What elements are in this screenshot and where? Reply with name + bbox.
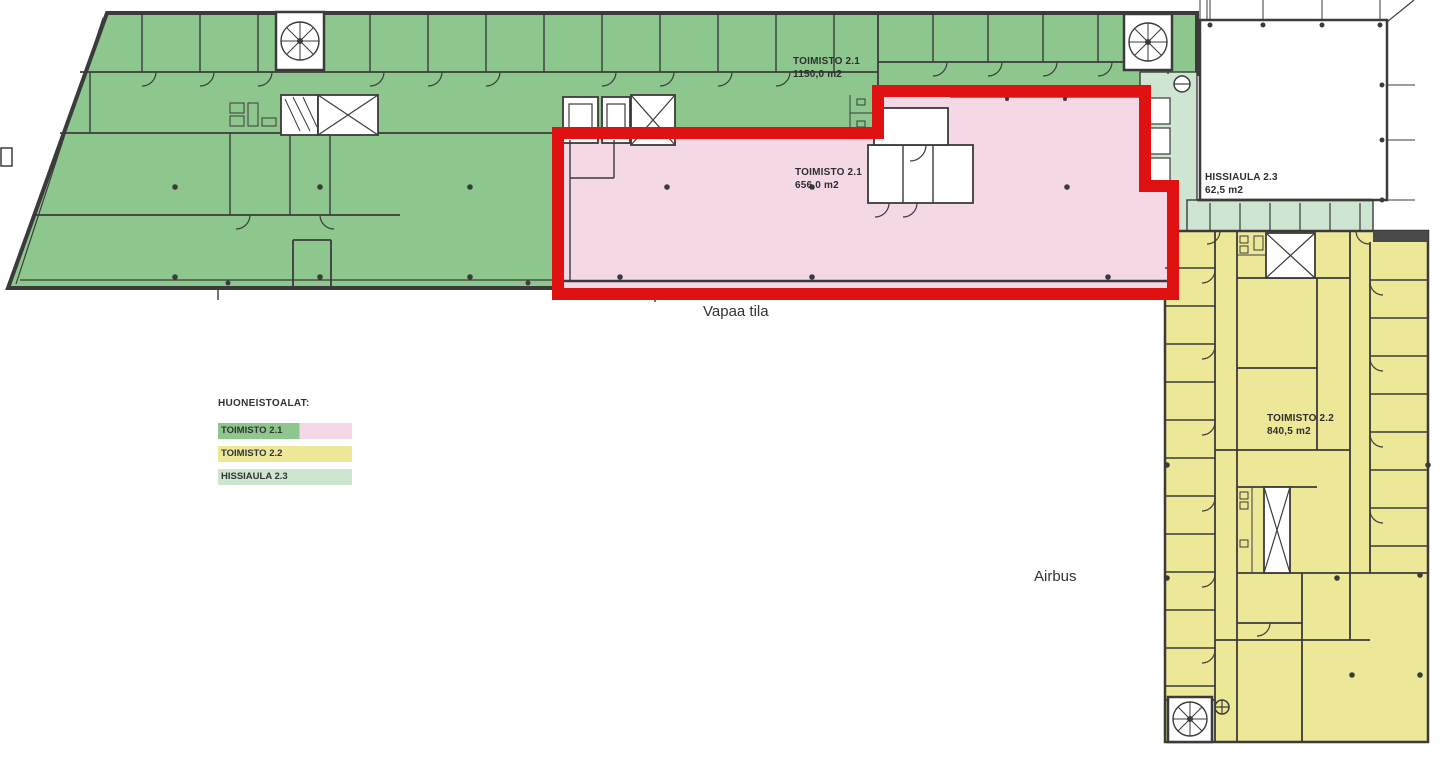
area-size: 62,5 m2	[1205, 185, 1278, 198]
label-hissiaula-23: HISSIAULA 2.3 62,5 m2	[1205, 172, 1278, 197]
label-toimisto-22: TOIMISTO 2.2 840,5 m2	[1267, 413, 1334, 438]
floor-plan-page: TOIMISTO 2.1 1150,0 m2 TOIMISTO 2.1 656,…	[0, 0, 1447, 763]
area-hissiaula-band	[1187, 200, 1373, 231]
floor-plan-canvas	[0, 0, 1447, 763]
area-name: TOIMISTO 2.1	[793, 56, 860, 69]
area-size: 840,5 m2	[1267, 426, 1334, 439]
inner-room	[868, 145, 973, 203]
area-size: 1150,0 m2	[793, 69, 860, 82]
section-mark	[1, 148, 12, 166]
wall-band-dark	[1373, 231, 1428, 242]
area-name: HISSIAULA 2.3	[1205, 172, 1278, 185]
spiral-stair-icon	[276, 12, 324, 70]
inner-room	[874, 108, 948, 145]
legend-item-toimisto-22: TOIMISTO 2.2	[218, 446, 352, 462]
legend: HUONEISTOALAT: TOIMISTO 2.1 TOIMISTO 2.2…	[218, 398, 352, 492]
spiral-stair-icon	[1168, 697, 1212, 742]
legend-title: HUONEISTOALAT:	[218, 398, 352, 409]
annotation-airbus: Airbus	[1034, 568, 1077, 585]
label-toimisto-21-free: TOIMISTO 2.1 656,0 m2	[795, 167, 862, 192]
annotation-vapaa-tila: Vapaa tila	[703, 303, 769, 320]
label-toimisto-21-main: TOIMISTO 2.1 1150,0 m2	[793, 56, 860, 81]
area-name: TOIMISTO 2.1	[795, 167, 862, 180]
area-name: TOIMISTO 2.2	[1267, 413, 1334, 426]
spiral-stair-icon	[1124, 14, 1172, 70]
area-size: 656,0 m2	[795, 180, 862, 193]
legend-item-hissiaula-23: HISSIAULA 2.3	[218, 469, 352, 485]
legend-item-toimisto-21: TOIMISTO 2.1	[218, 423, 352, 439]
